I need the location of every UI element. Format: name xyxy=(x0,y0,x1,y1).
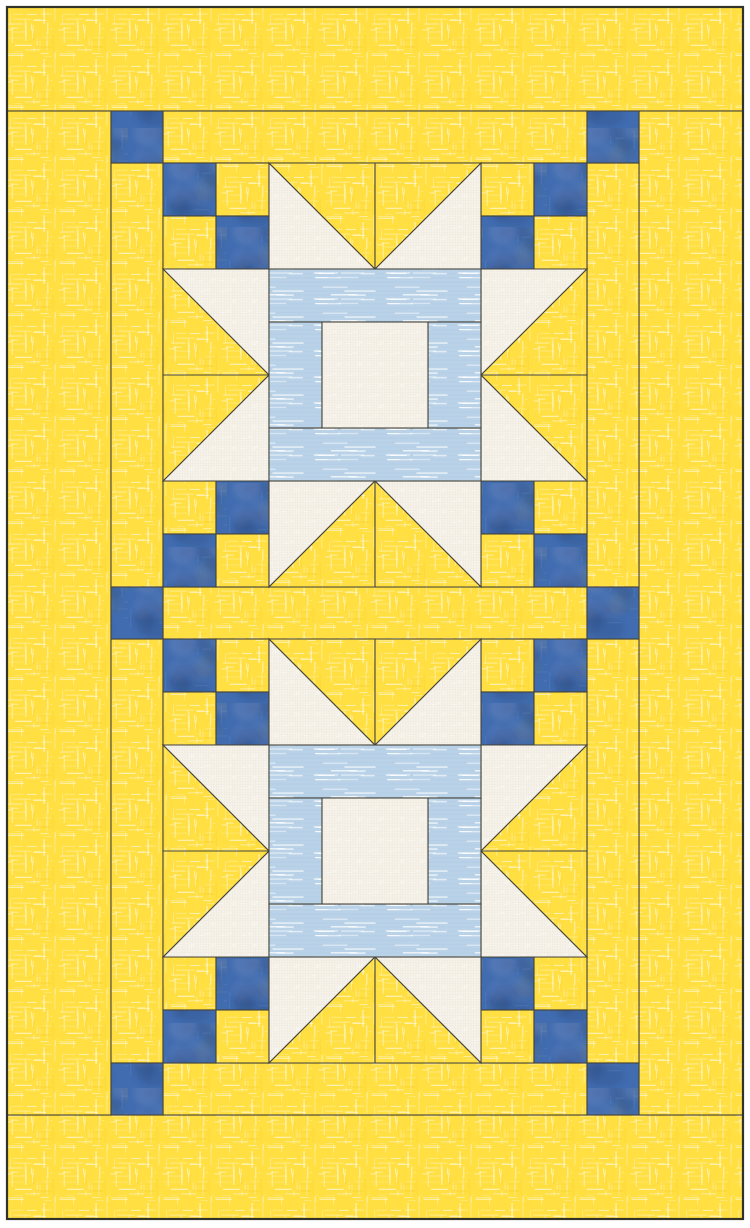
block-center-frame-strip xyxy=(269,428,481,481)
block-center-frame-strip xyxy=(269,798,322,904)
block-center-frame-strip xyxy=(269,904,481,957)
border-right xyxy=(639,111,743,1115)
four-patch-square xyxy=(216,534,269,587)
quilt-top xyxy=(7,7,743,1219)
four-patch-square xyxy=(163,957,216,1010)
four-patch-square xyxy=(481,957,534,1010)
sash-col-left-upper xyxy=(111,163,163,587)
four-patch-square xyxy=(163,692,216,745)
four-patch-square xyxy=(216,481,269,534)
block-center-square xyxy=(322,322,428,428)
block-center-frame-strip xyxy=(269,322,322,428)
four-patch-square xyxy=(216,957,269,1010)
cornerstone xyxy=(111,1063,163,1115)
cornerstone xyxy=(587,1063,639,1115)
four-patch-square xyxy=(481,639,534,692)
cornerstone xyxy=(587,587,639,639)
four-patch-square xyxy=(534,639,587,692)
four-patch-square xyxy=(481,216,534,269)
four-patch-square xyxy=(481,692,534,745)
border-left xyxy=(7,111,111,1115)
four-patch-square xyxy=(481,163,534,216)
quilt-design-image xyxy=(0,0,750,1228)
four-patch-square xyxy=(163,1010,216,1063)
quilt-pattern-page xyxy=(0,0,750,1228)
border-bottom xyxy=(7,1115,743,1219)
four-patch-square xyxy=(534,481,587,534)
block-center-frame-strip xyxy=(428,322,481,428)
star-block-2 xyxy=(163,639,587,1063)
sash-row-bottom xyxy=(163,1063,587,1115)
four-patch-square xyxy=(216,639,269,692)
cornerstone xyxy=(111,587,163,639)
sash-col-right-lower xyxy=(587,639,639,1063)
four-patch-square xyxy=(163,481,216,534)
star-block-1 xyxy=(163,163,587,587)
four-patch-square xyxy=(534,1010,587,1063)
four-patch-square xyxy=(216,692,269,745)
four-patch-square xyxy=(481,481,534,534)
four-patch-square xyxy=(534,692,587,745)
cornerstone xyxy=(587,111,639,163)
sash-col-right-upper xyxy=(587,163,639,587)
four-patch-square xyxy=(534,216,587,269)
sash-row-middle xyxy=(163,587,587,639)
four-patch-square xyxy=(481,534,534,587)
four-patch-square xyxy=(163,216,216,269)
four-patch-square xyxy=(534,957,587,1010)
four-patch-square xyxy=(534,163,587,216)
four-patch-square xyxy=(481,1010,534,1063)
block-center-frame-strip xyxy=(269,269,481,322)
sash-col-left-lower xyxy=(111,639,163,1063)
block-center-frame-strip xyxy=(269,745,481,798)
cornerstone xyxy=(111,111,163,163)
block-center-frame-strip xyxy=(428,798,481,904)
sash-row-top xyxy=(163,111,587,163)
four-patch-square xyxy=(534,534,587,587)
border-top xyxy=(7,7,743,111)
four-patch-square xyxy=(216,1010,269,1063)
four-patch-square xyxy=(163,639,216,692)
four-patch-square xyxy=(216,216,269,269)
four-patch-square xyxy=(163,163,216,216)
block-center-square xyxy=(322,798,428,904)
four-patch-square xyxy=(216,163,269,216)
four-patch-square xyxy=(163,534,216,587)
